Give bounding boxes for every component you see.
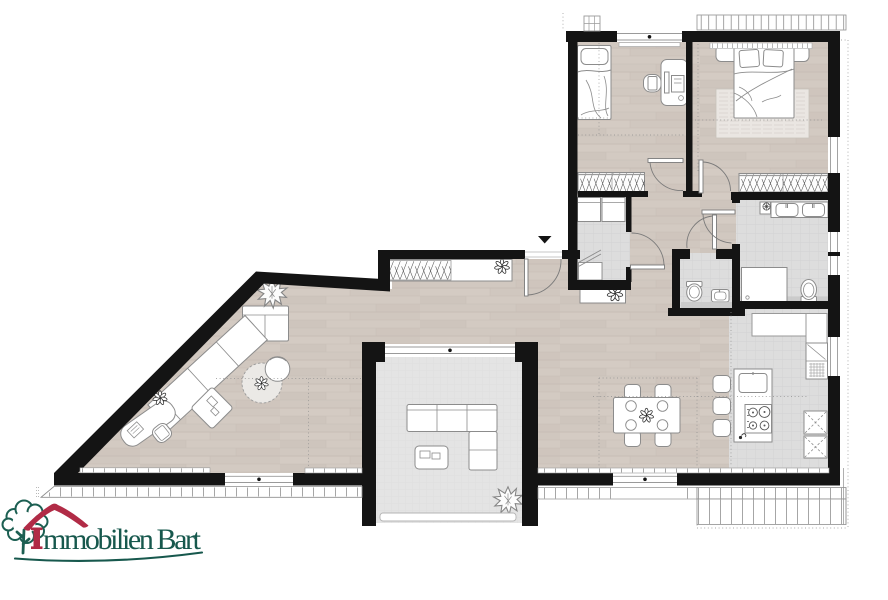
- svg-text:mmobilien Bart: mmobilien Bart: [43, 523, 202, 556]
